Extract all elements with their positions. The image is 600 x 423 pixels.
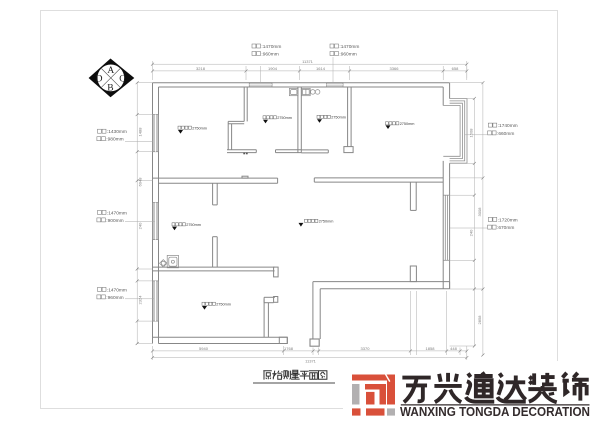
- svg-text:1508: 1508: [468, 128, 473, 138]
- svg-text:2750mm: 2750mm: [277, 116, 292, 120]
- svg-text:1858: 1858: [426, 346, 436, 351]
- svg-text:1904: 1904: [268, 66, 278, 71]
- svg-text:448: 448: [450, 346, 457, 351]
- svg-text:1488: 1488: [138, 127, 143, 137]
- svg-text::660mm: :660mm: [497, 131, 514, 137]
- svg-text:240: 240: [468, 229, 473, 236]
- svg-text:A: A: [107, 66, 114, 76]
- svg-text:3370: 3370: [361, 346, 371, 351]
- svg-text:2750mm: 2750mm: [192, 126, 207, 130]
- svg-text:240: 240: [138, 222, 143, 229]
- svg-text::1470mm: :1470mm: [261, 44, 281, 50]
- svg-text:2750mm: 2750mm: [331, 116, 346, 120]
- svg-text:D: D: [96, 75, 103, 85]
- svg-text:2750mm: 2750mm: [186, 223, 201, 227]
- svg-text:11371: 11371: [302, 59, 314, 64]
- svg-text:11371: 11371: [305, 358, 317, 363]
- svg-text:B: B: [107, 84, 113, 94]
- svg-text::960mm: :960mm: [261, 52, 278, 58]
- svg-text:3008: 3008: [477, 207, 482, 217]
- svg-text:6048: 6048: [138, 177, 143, 187]
- svg-text:2324: 2324: [138, 295, 143, 305]
- svg-text:C: C: [119, 75, 125, 85]
- svg-text:WANXING TONGDA DECORATION: WANXING TONGDA DECORATION: [400, 404, 590, 419]
- svg-text::980mm: :980mm: [106, 137, 123, 143]
- svg-text:2750mm: 2750mm: [216, 302, 231, 306]
- svg-text:5940: 5940: [199, 346, 209, 351]
- svg-text:2858: 2858: [477, 315, 482, 325]
- svg-text:1614: 1614: [316, 66, 326, 71]
- svg-text:1768: 1768: [284, 346, 294, 351]
- svg-text::1720mm: :1720mm: [498, 217, 518, 223]
- svg-text::1430mm: :1430mm: [107, 129, 127, 135]
- svg-text::1470mm: :1470mm: [107, 210, 127, 216]
- svg-text::960mm: :960mm: [339, 52, 356, 58]
- svg-text::1470mm: :1470mm: [107, 287, 127, 293]
- svg-text:3366: 3366: [390, 66, 400, 71]
- svg-text::670mm: :670mm: [497, 225, 514, 231]
- svg-text:3218: 3218: [196, 66, 206, 71]
- svg-text::1470mm: :1470mm: [339, 44, 359, 50]
- svg-text:2750mm: 2750mm: [319, 220, 334, 224]
- svg-text:658: 658: [452, 66, 459, 71]
- svg-text::1740mm: :1740mm: [498, 123, 518, 129]
- svg-text::960mm: :960mm: [106, 295, 123, 301]
- svg-text:2750mm: 2750mm: [400, 122, 415, 126]
- svg-text::900mm: :900mm: [106, 218, 123, 224]
